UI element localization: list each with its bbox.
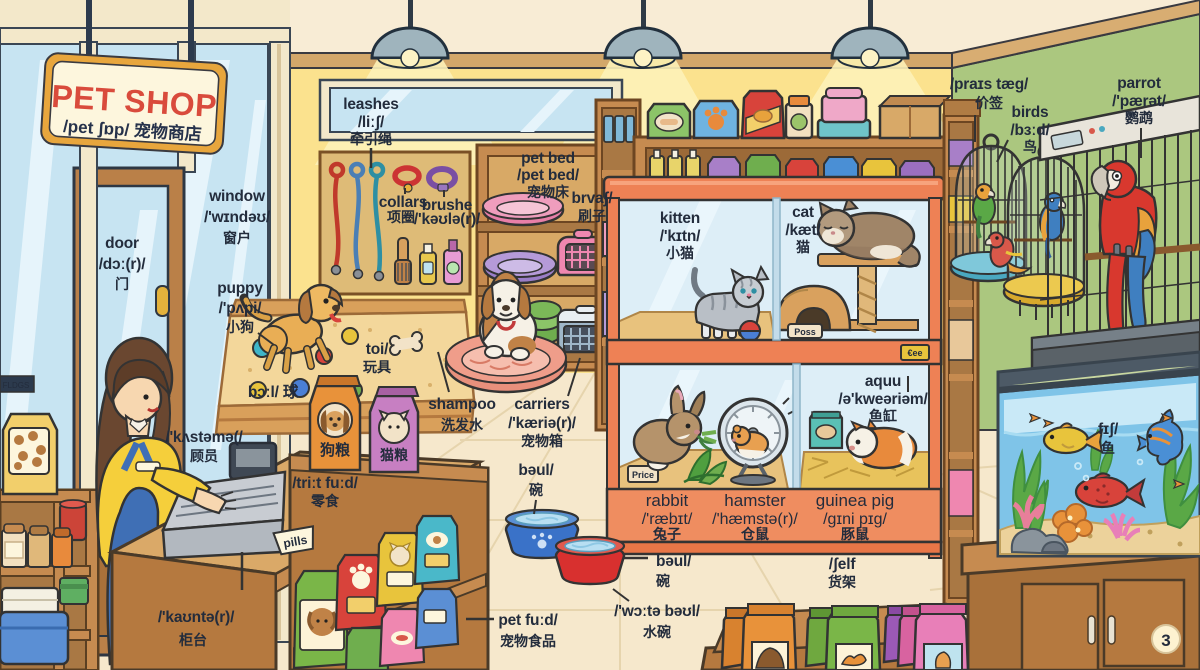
svg-text:/ʃelf: /ʃelf (829, 556, 857, 573)
svg-text:碗: 碗 (529, 482, 543, 498)
svg-text:/'pærət/: /'pærət/ (1112, 93, 1167, 110)
svg-text:柜台: 柜台 (179, 632, 207, 648)
svg-text:/dɔː(r)/: /dɔː(r)/ (99, 256, 147, 273)
svg-text:鸟: 鸟 (1023, 139, 1037, 155)
svg-text:窗户: 窗户 (223, 230, 251, 246)
svg-text:bəul/: bəul/ (656, 553, 692, 570)
svg-text:bɔːl/ 球: bɔːl/ 球 (248, 382, 299, 401)
svg-text:宠物食品: 宠物食品 (500, 633, 556, 649)
svg-text:/pet bed/: /pet bed/ (517, 167, 580, 184)
svg-text:pet bed: pet bed (521, 150, 575, 167)
svg-text:鱼缸: 鱼缸 (869, 408, 897, 424)
svg-text:/'kæriə(r)/: /'kæriə(r)/ (508, 415, 577, 432)
svg-text:fɪʃ/: fɪʃ/ (1098, 421, 1119, 438)
svg-text:parrot: parrot (1117, 75, 1161, 92)
svg-text:刷子: 刷子 (578, 208, 606, 224)
svg-text:FLDGS: FLDGS (3, 381, 30, 390)
svg-text:carriers: carriers (514, 396, 569, 413)
svg-text:水碗: 水碗 (643, 624, 671, 640)
svg-text:玩具: 玩具 (363, 359, 391, 375)
svg-text:鹦鹉: 鹦鹉 (1124, 110, 1153, 126)
svg-text:leashes: leashes (343, 96, 398, 113)
svg-text:狗粮: 狗粮 (320, 441, 351, 459)
svg-text:rabbit: rabbit (646, 491, 689, 510)
svg-text:toi/: toi/ (366, 341, 389, 358)
svg-text:guinea pig: guinea pig (816, 491, 894, 510)
svg-text:/'pʌpi/: /'pʌpi/ (219, 300, 263, 317)
svg-text:/bɜːd/: /bɜːd/ (1010, 122, 1050, 139)
svg-text:宠物箱: 宠物箱 (521, 433, 563, 449)
svg-text:/'wɔːtə bəʊl/: /'wɔːtə bəʊl/ (614, 603, 701, 620)
svg-text:门: 门 (115, 276, 129, 292)
svg-text:Price: Price (632, 470, 654, 480)
svg-text:项圈: 项圈 (387, 209, 415, 225)
svg-text:鱼: 鱼 (1101, 440, 1115, 456)
svg-text:birds: birds (1012, 104, 1049, 121)
svg-text:兔子: 兔子 (652, 526, 681, 542)
svg-text:猫: 猫 (796, 239, 810, 255)
svg-text:3: 3 (1161, 631, 1170, 650)
svg-text:/'kʌstəmə(/: /'kʌstəmə(/ (165, 429, 243, 446)
svg-text:洗发水: 洗发水 (441, 417, 484, 433)
svg-text:碗: 碗 (656, 573, 670, 589)
svg-text:小狗: 小狗 (226, 319, 254, 335)
svg-text:€ee: €ee (907, 348, 922, 358)
svg-text:/triːt fuːd/: /triːt fuːd/ (292, 475, 358, 492)
svg-text:猫粮: 猫粮 (380, 447, 409, 463)
svg-text:aquu: aquu (865, 373, 901, 390)
svg-text:cat: cat (792, 204, 814, 221)
svg-text:/'kəʊlə(r)/: /'kəʊlə(r)/ (414, 211, 481, 228)
svg-text:door: door (105, 235, 139, 252)
svg-text:pet fuːd/: pet fuːd/ (498, 612, 558, 629)
svg-text:puppy: puppy (217, 280, 263, 297)
svg-text:顾员: 顾员 (190, 448, 218, 464)
svg-text:hamster: hamster (724, 491, 786, 510)
svg-text:brvaʃ/: brvaʃ/ (571, 190, 613, 207)
svg-text:牵引绳: 牵引绳 (350, 131, 392, 147)
svg-text:货架: 货架 (827, 574, 856, 590)
svg-text:/ə'kweəriəm/: /ə'kweəriəm/ (838, 391, 928, 408)
svg-text:Poss: Poss (794, 327, 816, 337)
svg-text:shampoo: shampoo (428, 396, 496, 413)
svg-text:/praɪs tæg/: /praɪs tæg/ (950, 76, 1029, 93)
svg-text:/'kaʊntə(r)/: /'kaʊntə(r)/ (158, 609, 235, 626)
svg-text:/liːʃ/: /liːʃ/ (358, 114, 385, 131)
svg-text:价签: 价签 (975, 95, 1004, 111)
svg-text:小猫: 小猫 (666, 245, 694, 261)
svg-text:宠物床: 宠物床 (527, 184, 570, 200)
svg-text:window: window (208, 188, 266, 205)
svg-text:/'kɪtn/: /'kɪtn/ (660, 228, 701, 245)
svg-text:仓鼠: 仓鼠 (740, 526, 769, 542)
svg-text:/kæt/: /kæt/ (785, 222, 821, 239)
svg-text:kitten: kitten (660, 210, 700, 227)
svg-text:豚鼠: 豚鼠 (841, 526, 869, 542)
svg-text:/'wɪndəʊ/: /'wɪndəʊ/ (204, 209, 271, 226)
svg-text:零食: 零食 (310, 493, 340, 509)
svg-text:bəul/: bəul/ (518, 462, 554, 479)
